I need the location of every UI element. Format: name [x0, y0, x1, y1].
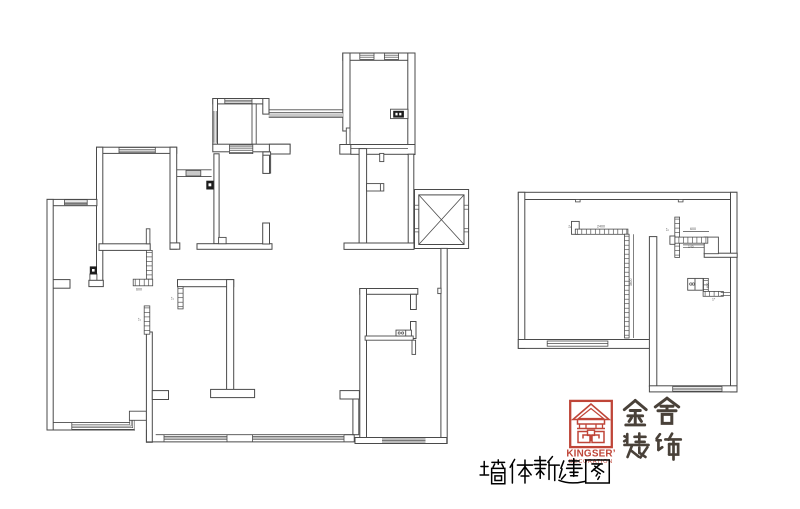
- svg-text:600: 600: [136, 288, 142, 292]
- svg-text:600: 600: [690, 227, 696, 231]
- svg-text:140: 140: [688, 245, 694, 249]
- svg-text:600: 600: [706, 282, 710, 288]
- svg-text:2400: 2400: [597, 225, 605, 229]
- svg-text:KINGSER’: KINGSER’: [566, 448, 615, 459]
- svg-text:3600: 3600: [629, 278, 633, 286]
